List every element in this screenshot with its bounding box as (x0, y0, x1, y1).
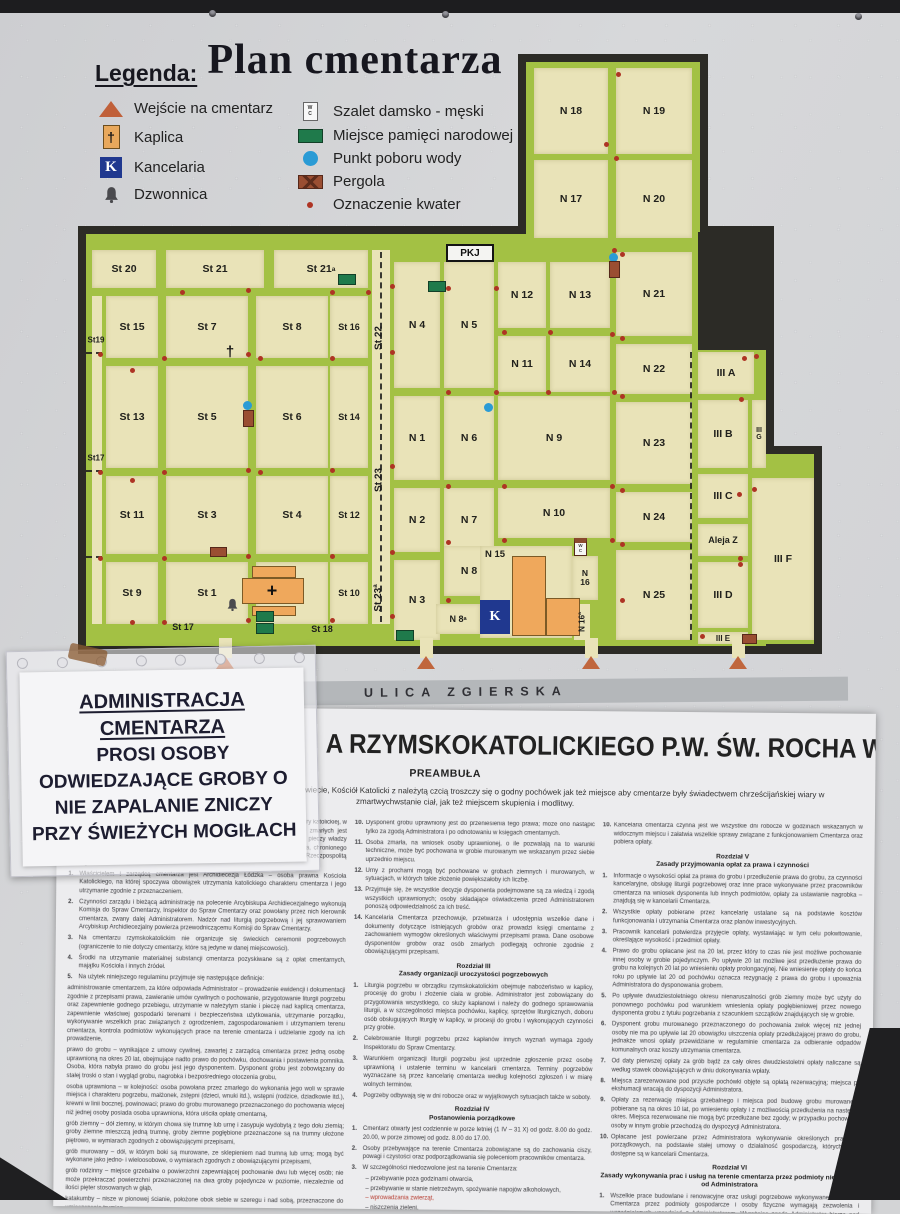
preamble-heading: PREAMBUŁA (409, 767, 481, 780)
map-section: St 11 (106, 476, 158, 554)
decorative: N 2 (409, 514, 425, 526)
decorative: N 22 (643, 363, 665, 375)
regulations-item: 8.Miejsca zarezerwowane pod przyszłe poc… (600, 1077, 860, 1097)
entrance-triangle-icon (417, 656, 435, 669)
decorative: 4. (67, 954, 78, 971)
notice-line: PROSI OSOBY (96, 743, 229, 767)
decorative: Zasady wykonywania prac i usług na teren… (599, 1172, 859, 1192)
regulations-item: 1.Informacje o wysokości opłat za prawa … (602, 872, 862, 909)
decorative: N 21 (643, 288, 665, 300)
regulations-title: A RZYMSKOKATOLICKIEGO P.W. ŚW. ROCHA W Ł… (325, 729, 875, 766)
section-heading: Rozdział VIZasady wykonywania prac i usł… (599, 1163, 859, 1191)
quarter-marker-dot (390, 350, 395, 355)
decorative: 3. (352, 1164, 363, 1173)
quarter-marker-dot (330, 356, 335, 361)
map-section: St 8 (256, 296, 328, 358)
street-label: ULICA ZGIERSKA (364, 684, 568, 700)
decorative: St 3 (197, 509, 216, 521)
decorative: St 14 (338, 412, 360, 422)
decorative: N 17 (560, 193, 582, 205)
cemetery-map: St 20St 21St 21aSt 15St 7St 8St 16St 13S… (0, 0, 900, 700)
decorative: 2. (602, 908, 613, 925)
quarter-marker-dot (366, 290, 371, 295)
decorative: Kancelaria Cmentarza przechowuje, przetw… (365, 914, 594, 959)
quarter-marker-dot (752, 487, 757, 492)
decorative: St 23 (374, 468, 385, 492)
decorative: 16 (580, 578, 589, 587)
quarter-marker-dot (446, 484, 451, 489)
decorative: St 1 (197, 587, 216, 599)
decorative: N 8 (461, 565, 477, 577)
screw-icon (442, 11, 449, 18)
decorative: III E (716, 634, 730, 643)
decorative: 5. (67, 973, 78, 982)
decorative: N 5 (461, 319, 477, 331)
quarter-marker-dot (98, 352, 103, 357)
decorative: St 6 (282, 411, 301, 423)
notice-line: ADMINISTRACJA (79, 689, 245, 715)
quarter-marker-dot (604, 142, 609, 147)
section-heading: Rozdział IVPostanowienia porządkowe (352, 1105, 592, 1124)
quarter-marker-dot (162, 620, 167, 625)
decorative: N 8 (449, 614, 463, 624)
decorative: Cmentarz otwarty jest codziennie w porze… (363, 1125, 592, 1144)
quarter-marker-dot (494, 286, 499, 291)
regulations-paragraph: grób ziemny – dół ziemny, w którym chowa… (66, 1120, 344, 1148)
regulations-item: 3.Pracownik kancelarii potwierdza przyję… (602, 928, 862, 948)
decorative: 6. (601, 1021, 612, 1055)
decorative: N 9 (546, 432, 562, 444)
decorative: Osoba zmarła, na wniosek osoby uprawnion… (365, 838, 594, 866)
decorative: N 15 (485, 549, 505, 560)
quarter-marker-dot (620, 488, 625, 493)
regulations-subitem: – niszczenia zieleni, (351, 1204, 591, 1214)
memorial-icon (338, 274, 356, 285)
notice-line: ODWIEDZAJĄCE GROBY O (39, 768, 288, 794)
sleeve-holes (17, 652, 305, 669)
admin-notice: ADMINISTRACJACMENTARZAPROSI OSOBYODWIEDZ… (6, 645, 321, 877)
decorative: 12. (354, 866, 365, 883)
decorative: 10. (600, 1133, 611, 1159)
decorative: Dysponent grobu murowanego przeznaczoneg… (612, 1021, 861, 1057)
decorative: G (756, 434, 761, 441)
decorative: 10. (603, 821, 614, 847)
decorative: St19 (88, 336, 105, 345)
map-section: N 5 (444, 262, 494, 388)
map-section: St 7 (166, 296, 248, 358)
decorative: N 11 (511, 358, 533, 370)
quarter-marker-dot (737, 492, 742, 497)
office-building: K (480, 600, 510, 634)
decorative (231, 609, 233, 611)
map-section: N 11 (498, 336, 546, 392)
decorative: 17 (96, 454, 105, 463)
quarter-marker-dot (502, 330, 507, 335)
quarter-marker-dot (130, 478, 135, 483)
map-section: N 2 (394, 488, 440, 552)
regulations-item: 5.Na użytek niniejszego regulaminu przyj… (67, 973, 345, 984)
bell-icon (226, 598, 239, 616)
quarter-marker-dot (390, 284, 395, 289)
pergola-icon (742, 634, 757, 644)
entrance-gap (420, 638, 433, 658)
section-heading: Rozdział VZasady przyjmowania opłat za p… (602, 852, 862, 872)
decorative: St 17 (172, 622, 194, 632)
decorative: N 6 (461, 432, 477, 444)
decorative: St 18 (311, 624, 333, 634)
road-label: St 23 (374, 468, 385, 492)
frame-top-band (0, 0, 900, 13)
regulations-item: 4.Pogrzeby odbywają się w dni robocze or… (352, 1091, 592, 1102)
map-section: N 21 (616, 252, 692, 336)
decorative: 5. (601, 993, 612, 1019)
decorative: III F (774, 553, 792, 565)
regulations-item: 2.Osoby przebywające na terenie Cmentarz… (352, 1145, 592, 1164)
decorative: St 10 (338, 588, 360, 598)
regulations-item: 3.Na cmentarzu rzymskokatolickim nie org… (68, 934, 346, 954)
quarter-marker-dot (739, 397, 744, 402)
decorative: Czynności zarządu i bieżącą administracj… (79, 898, 346, 935)
cross-icon: † (226, 344, 234, 361)
notice-line: NIE ZAPALANIE ZNICZY (55, 794, 274, 820)
regulations-item: 10.Kancelaria cmentarza czynna jest we w… (603, 821, 863, 849)
chapel-building (252, 566, 296, 578)
map-section: N16 (572, 556, 598, 600)
regulations-item: 12.Urny z prochami mogą być pochowane w … (354, 866, 594, 885)
quarter-marker-dot (494, 390, 499, 395)
decorative: 1. (353, 982, 364, 1033)
regulations-item: 2.Wszystkie opłaty pobierane przez kance… (602, 908, 862, 928)
decorative: III C (713, 490, 732, 502)
boundary-dash-line (690, 352, 692, 640)
map-section: N 17 (534, 160, 608, 238)
decorative: 7. (600, 1057, 611, 1074)
quarter-marker-dot (502, 538, 507, 543)
regulations-paragraph: katakumby – nisze w pionowej ścianie, po… (65, 1195, 343, 1214)
decorative: III A (717, 367, 736, 379)
chapel-building (512, 556, 546, 636)
decorative: Informacje o wysokości opłat za prawa do… (613, 872, 862, 908)
notice-paper: ADMINISTRACJACMENTARZAPROSI OSOBYODWIEDZ… (19, 668, 306, 867)
quarter-marker-dot (130, 368, 135, 373)
map-section: N 3 (394, 560, 440, 640)
quarter-marker-dot (738, 556, 743, 561)
map-section: N 9 (498, 396, 610, 480)
entrance-gap (585, 638, 598, 658)
regulations-paragraph: prawo do grobu – wynikające z umowy cywi… (66, 1046, 344, 1083)
decorative: a (332, 266, 336, 273)
decorative: N 12 (511, 289, 533, 301)
quarter-marker-dot (246, 352, 251, 357)
decorative: N 10 (543, 507, 565, 519)
decorative: 3. (68, 934, 79, 951)
decorative: 10. (355, 819, 366, 836)
map-section: III F (752, 478, 814, 640)
decorative: III (756, 427, 762, 434)
decorative: St 7 (197, 321, 216, 333)
decorative: N 13 (569, 289, 591, 301)
map-section: St 13 (106, 366, 158, 468)
decorative: Dysponent grobu uprawniony jest do przen… (366, 819, 595, 838)
memorial-icon (256, 611, 274, 622)
entrance-triangle-icon (582, 656, 600, 669)
entrance-triangle-icon (729, 656, 747, 669)
decorative: Liturgia pogrzebu w obrządku rzymskokato… (364, 982, 593, 1035)
decorative: Opłacane jest powierzane przez Administr… (611, 1133, 860, 1161)
regulations-columns: Cmentarz jest miejscem świętym przeznacz… (63, 816, 862, 1214)
regulations-column: 10.Kancelaria cmentarza czynna jest we w… (597, 821, 863, 1214)
decorative: III B (713, 428, 732, 440)
decorative: Celebrowanie liturgii pogrzebu przez kap… (364, 1035, 593, 1054)
decorative: 11. (354, 838, 365, 864)
decorative: Po upływie dwudziestoletniego okresu nie… (612, 993, 861, 1021)
map-section: St 3 (166, 476, 248, 554)
pergola-icon (210, 547, 227, 557)
decorative (228, 599, 238, 609)
quarter-marker-dot (620, 336, 625, 341)
road-label: N 16a (578, 612, 587, 632)
map-section: N 14 (550, 336, 610, 392)
regulations-item: 2.Celebrowanie liturgii pogrzebu przez k… (353, 1035, 593, 1054)
map-section: N 13 (550, 262, 610, 328)
quarter-marker-dot (98, 470, 103, 475)
notice-line: CMENTARZA (100, 716, 226, 741)
regulations-item: 3.Warunkiem organizacji liturgii pogrzeb… (352, 1055, 592, 1091)
regulations-item: 1.Cmentarz otwarty jest codziennie w por… (352, 1125, 592, 1144)
boundary-dash-line (380, 252, 382, 622)
decorative: St 4 (282, 509, 301, 521)
map-section: N 18 (534, 68, 608, 154)
decorative: N 18 (560, 105, 582, 117)
regulations-item: 7.Od daty pierwszej opłaty za grób bądź … (600, 1057, 860, 1077)
quarter-marker-dot (246, 554, 251, 559)
decorative (226, 598, 239, 611)
quarter-marker-dot (446, 390, 451, 395)
decorative: Wszystkie opłaty pobierane przez kancela… (613, 909, 862, 928)
map-section: N 24 (616, 492, 692, 542)
sleeve-hole (294, 652, 305, 663)
decorative: N 25 (643, 589, 665, 601)
map-section: N 1 (394, 396, 440, 480)
decorative: 19 (96, 336, 105, 345)
pkj-label: PKJ (446, 244, 494, 262)
quarter-marker-dot (330, 468, 335, 473)
quarter-marker-dot (330, 618, 335, 623)
sleeve-hole (215, 654, 226, 665)
decorative: N 14 (569, 358, 591, 370)
decorative: Urny z prochami mogą być pochowane w gro… (365, 867, 594, 886)
quarter-marker-dot (162, 356, 167, 361)
quarter-marker-dot (98, 556, 103, 561)
decorative: Miejsca zarezerwowane pod przyszłe pochó… (611, 1077, 860, 1096)
map-section: N 12 (498, 262, 546, 328)
regulations-paragraph: administrowanie cmentarzem, za które odp… (67, 984, 346, 1046)
road-label: St17 (88, 454, 105, 463)
map-section: St 20 (92, 250, 156, 288)
decorative: St 22 (374, 326, 385, 350)
decorative: St 12 (338, 510, 360, 520)
road-label: St 23a (372, 584, 384, 611)
regulations-item: 10.Opłacane jest powierzane przez Admini… (600, 1133, 860, 1161)
decorative: a (463, 616, 466, 622)
decorative: N 20 (643, 193, 665, 205)
map-section: St 5 (166, 366, 248, 468)
regulations-item: 6.Dysponent grobu murowanego przeznaczon… (601, 1021, 861, 1058)
quarter-marker-dot (446, 598, 451, 603)
screw-icon (209, 10, 216, 17)
quarter-marker-dot (246, 468, 251, 473)
sleeve-hole (56, 657, 67, 668)
decorative: N 7 (461, 514, 477, 526)
map-section: N 23 (616, 402, 692, 484)
water-point-icon (243, 401, 252, 410)
decorative: 1. (599, 1192, 610, 1214)
regulations-item: 5.Po upływie dwudziestoletniego okresu n… (601, 993, 861, 1021)
decorative: Na cmentarzu rzymskokatolickim nie organ… (79, 934, 346, 954)
regulations-item: 14.Kancelaria Cmentarza przechowuje, prz… (354, 914, 594, 959)
decorative: St17 (88, 454, 105, 463)
quarter-marker-dot (548, 330, 553, 335)
quarter-marker-dot (446, 540, 451, 545)
decorative: St 20 (111, 263, 136, 275)
map-section: St 16 (330, 296, 368, 358)
quarter-marker-dot (620, 252, 625, 257)
memorial-icon (256, 623, 274, 634)
decorative: Zasady przyjmowania opłat za prawa i czy… (602, 860, 862, 871)
decorative: Aleja Z (708, 535, 738, 545)
decorative: St 13 (119, 411, 144, 423)
decorative: 2. (68, 898, 79, 932)
road-label: St 22 (374, 326, 385, 350)
regulations-item: 2.Czynności zarządu i bieżącą administra… (68, 898, 346, 935)
decorative: St 15 (119, 321, 144, 333)
decorative: a (372, 584, 379, 587)
decorative: N 1 (409, 432, 425, 444)
regulations-paragraph: grób rodzinny – miejsce grzebalne o powi… (65, 1167, 343, 1195)
decorative: Opłaty za rezerwację miejsca grzebalnego… (611, 1096, 860, 1132)
map-section: N 10 (498, 488, 610, 538)
decorative: III D (713, 589, 732, 601)
regulations-item: 11.Osoba zmarła, na wniosek osoby uprawn… (354, 838, 594, 866)
quarter-marker-dot (610, 538, 615, 543)
sleeve-hole (17, 658, 28, 669)
map-section: Aleja Z (698, 524, 748, 556)
map-frame-patch (698, 232, 774, 350)
decorative: 2. (352, 1145, 363, 1162)
quarter-marker-dot (180, 290, 185, 295)
decorative: Osoby przebywające na terenie Cmentarza … (363, 1145, 592, 1164)
road-label: St19 (88, 336, 105, 345)
regulations-column: 10.Dysponent grobu uprawniony jest do pr… (349, 819, 595, 1214)
decorative: 14. (354, 914, 365, 957)
map-section: St 9 (106, 562, 158, 624)
quarter-marker-dot (546, 390, 551, 395)
regulations-paragraph: osoba uprawniona – w kolejności: osoba p… (66, 1083, 344, 1120)
map-section: N 25 (616, 550, 692, 640)
decorative: St (88, 336, 96, 345)
decorative: a (578, 612, 583, 615)
quarter-marker-dot (754, 354, 759, 359)
quarter-marker-dot (610, 484, 615, 489)
quarter-marker-dot (258, 356, 263, 361)
quarter-marker-dot (330, 554, 335, 559)
decorative: Warunkiem organizacji liturgii pogrzebu … (363, 1055, 592, 1091)
notice-line: PRZY ŚWIEŻYCH MOGIŁACH (32, 820, 297, 847)
memorial-icon (428, 281, 446, 292)
quarter-marker-dot (502, 484, 507, 489)
decorative: N 23 (643, 437, 665, 449)
decorative: 1. (602, 872, 613, 906)
quarter-marker-dot (130, 620, 135, 625)
quarter-marker-dot (738, 562, 743, 567)
section-heading: Rozdział IIIZasady organizacji uroczysto… (353, 962, 593, 981)
map-section: St 12 (330, 476, 368, 554)
quarter-marker-dot (162, 556, 167, 561)
decorative: 2. (353, 1035, 364, 1052)
sleeve-hole (175, 654, 186, 665)
quarter-marker-dot (390, 464, 395, 469)
map-section: III D (698, 562, 748, 628)
map-section: N 8a (436, 604, 480, 634)
road-label: St 17 (172, 622, 194, 632)
decorative: Przyjmuje się, że wszystkie decyzje dysp… (365, 886, 594, 914)
decorative: IIIG (756, 427, 762, 442)
decorative: 8. (600, 1077, 611, 1094)
regulations-item: 4.Środki na utrzymanie materialnej subst… (67, 954, 345, 974)
decorative: St 21 (307, 263, 332, 275)
quarter-marker-dot (614, 156, 619, 161)
regulations-item: 1.Wszelkie prace budowlane i renowacyjne… (599, 1192, 859, 1214)
decorative: C (579, 549, 582, 554)
decorative: Pogrzeby odbywają się w dni robocze oraz… (363, 1091, 591, 1102)
screw-icon (855, 13, 862, 20)
decorative: St 5 (197, 411, 216, 423)
decorative: Od daty pierwszej opłaty za grób bądź za… (611, 1057, 860, 1076)
decorative: 9. (600, 1096, 611, 1130)
decorative: 1. (352, 1125, 363, 1142)
decorative: N 16 (578, 615, 587, 632)
quarter-marker-dot (258, 470, 263, 475)
decorative: Kancelaria cmentarza czynna jest we wszy… (614, 821, 863, 849)
decorative: N16 (580, 569, 589, 587)
decorative: St 23 (373, 588, 384, 612)
road-label: St 18 (311, 624, 333, 634)
decorative: N 24 (643, 511, 665, 523)
map-section: N 22 (616, 344, 692, 394)
decorative: Na użytek niniejszego regulaminu przyjmu… (78, 973, 264, 983)
quarter-marker-dot (390, 550, 395, 555)
decorative: St 8 (282, 321, 301, 333)
regulations-column: Cmentarz jest miejscem świętym przeznacz… (63, 816, 347, 1214)
regulations-item: 1.Liturgia pogrzebu w obrządku rzymskoka… (353, 982, 593, 1035)
sleeve-hole (135, 655, 146, 666)
decorative: St 11 (120, 509, 145, 521)
map-section: N 19 (616, 68, 692, 154)
map-section: St 21 (166, 250, 264, 288)
map-section: St 6 (256, 366, 328, 468)
decorative: Postanowienia porządkowe (352, 1113, 592, 1124)
regulations-item: 13.Przyjmuje się, że wszystkie decyzje d… (354, 886, 594, 914)
decorative: W szczególności niedozwolone jest na ter… (363, 1164, 518, 1174)
decorative: N 3 (409, 594, 425, 606)
decorative: Wszelkie prace budowlane i renowacyjne o… (610, 1192, 859, 1214)
map-section: St 10 (330, 562, 368, 624)
decorative: St 9 (122, 587, 141, 599)
regulations-item: 4.Prawo do grobu opłacane jest na 20 lat… (601, 948, 861, 993)
wc-icon: WC (574, 538, 587, 556)
decorative: St 16 (338, 322, 360, 332)
decorative: 3. (352, 1055, 363, 1089)
